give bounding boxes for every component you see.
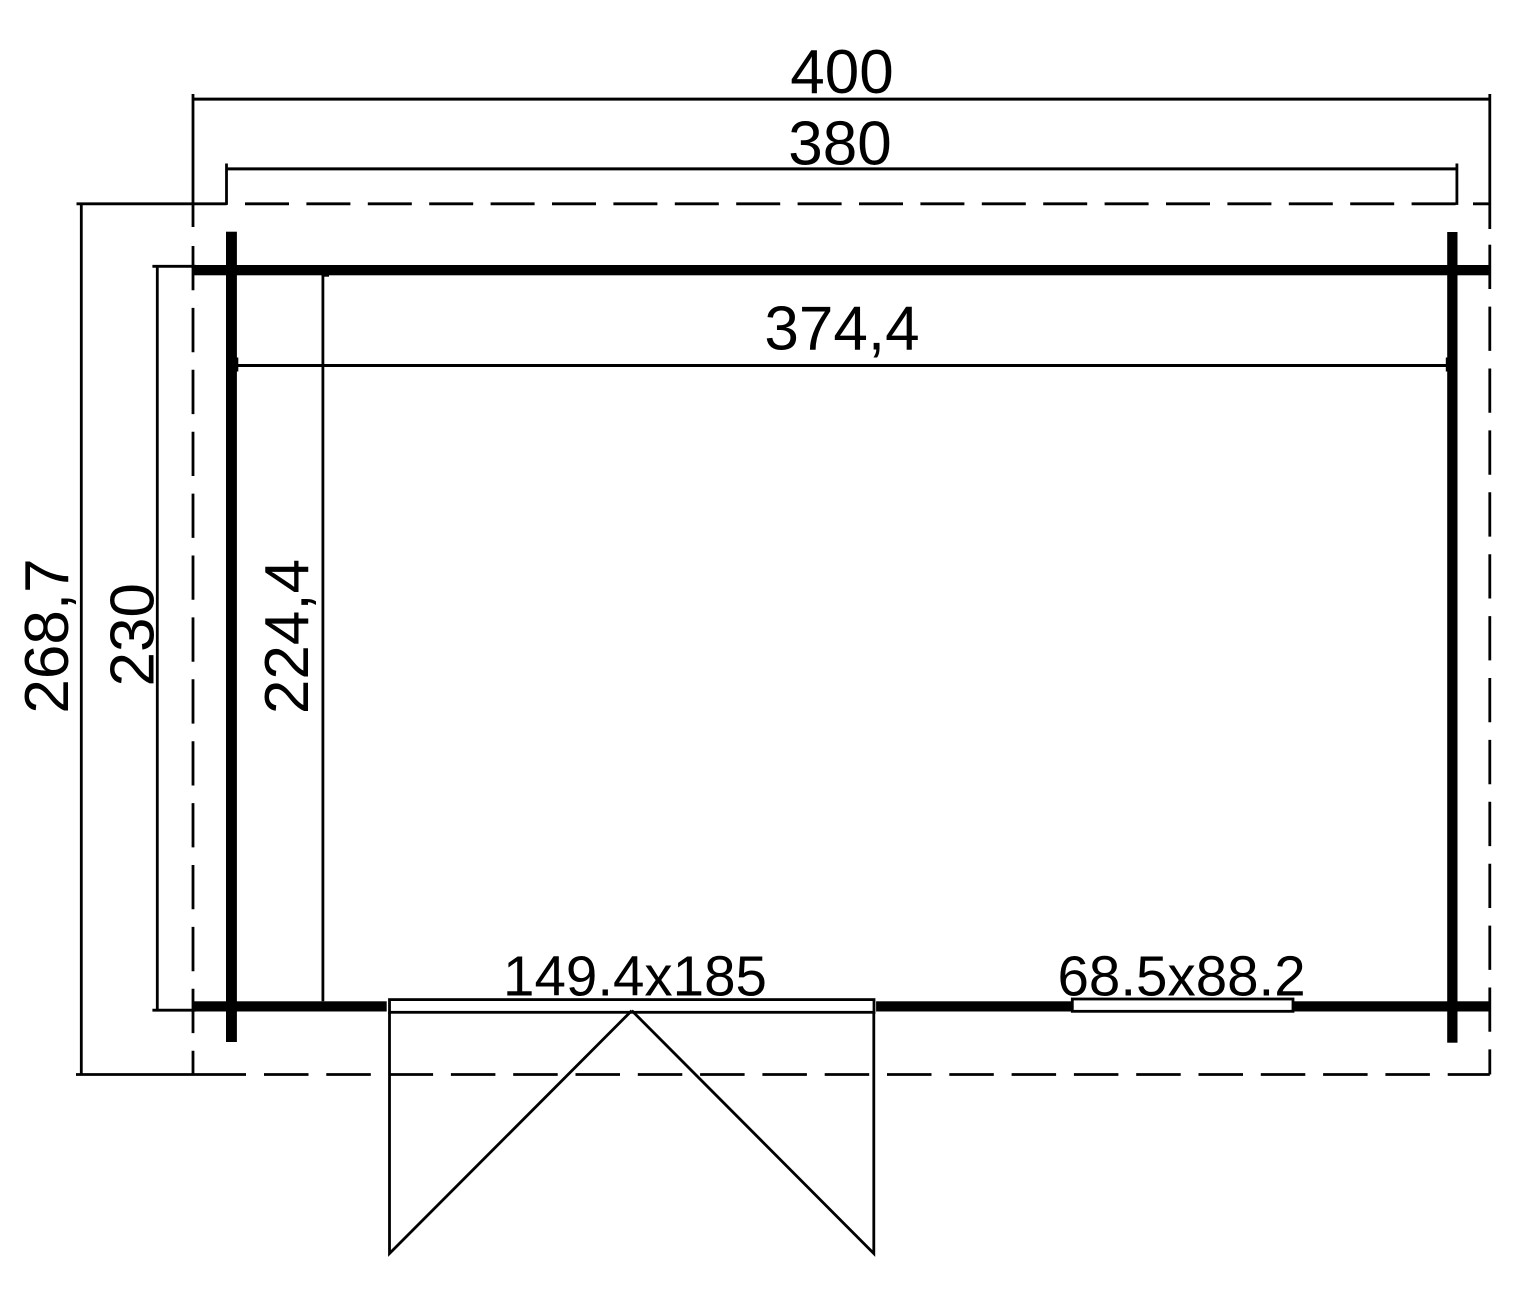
svg-text:268,7: 268,7 (13, 558, 82, 713)
svg-text:149.4x185: 149.4x185 (503, 945, 767, 1008)
svg-text:374,4: 374,4 (764, 294, 919, 363)
svg-text:224,4: 224,4 (253, 559, 322, 714)
svg-text:400: 400 (790, 38, 893, 107)
